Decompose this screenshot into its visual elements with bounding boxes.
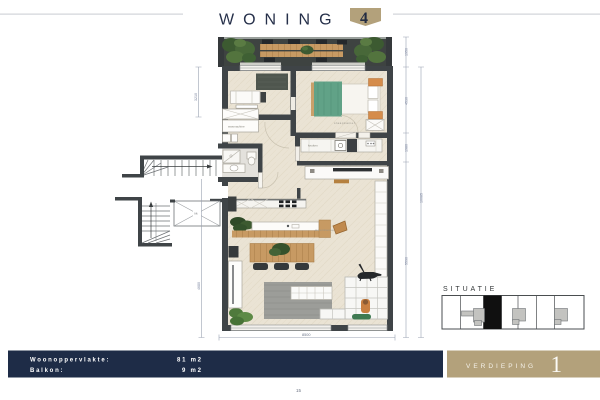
svg-text:8500: 8500 xyxy=(302,333,310,337)
svg-text:keuken: keuken xyxy=(308,144,318,148)
svg-text:10085: 10085 xyxy=(420,193,424,203)
svg-text:15: 15 xyxy=(296,388,302,393)
svg-text:WONING: WONING xyxy=(219,12,341,29)
svg-text:3210: 3210 xyxy=(194,93,198,101)
svg-text:5590: 5590 xyxy=(405,257,409,265)
svg-text:Balkon:: Balkon: xyxy=(30,368,64,374)
svg-text:VERDIEPING: VERDIEPING xyxy=(466,363,536,370)
svg-text:woonkamer: woonkamer xyxy=(315,228,335,232)
svg-text:slaapkamer: slaapkamer xyxy=(334,121,356,125)
svg-text:1: 1 xyxy=(551,352,563,377)
svg-text:lift: lift xyxy=(195,212,198,216)
svg-text:wasmachine: wasmachine xyxy=(228,125,245,129)
svg-text:Woonoppervlakte:: Woonoppervlakte: xyxy=(30,358,110,364)
svg-text:1950: 1950 xyxy=(405,48,409,56)
svg-text:9 m2: 9 m2 xyxy=(182,368,203,374)
svg-text:4530: 4530 xyxy=(405,97,409,105)
svg-text:SITUATIE: SITUATIE xyxy=(443,286,497,293)
svg-text:4: 4 xyxy=(360,10,368,27)
svg-text:81 m2: 81 m2 xyxy=(177,358,203,364)
svg-text:4680: 4680 xyxy=(197,282,201,290)
svg-text:1980: 1980 xyxy=(405,144,409,152)
